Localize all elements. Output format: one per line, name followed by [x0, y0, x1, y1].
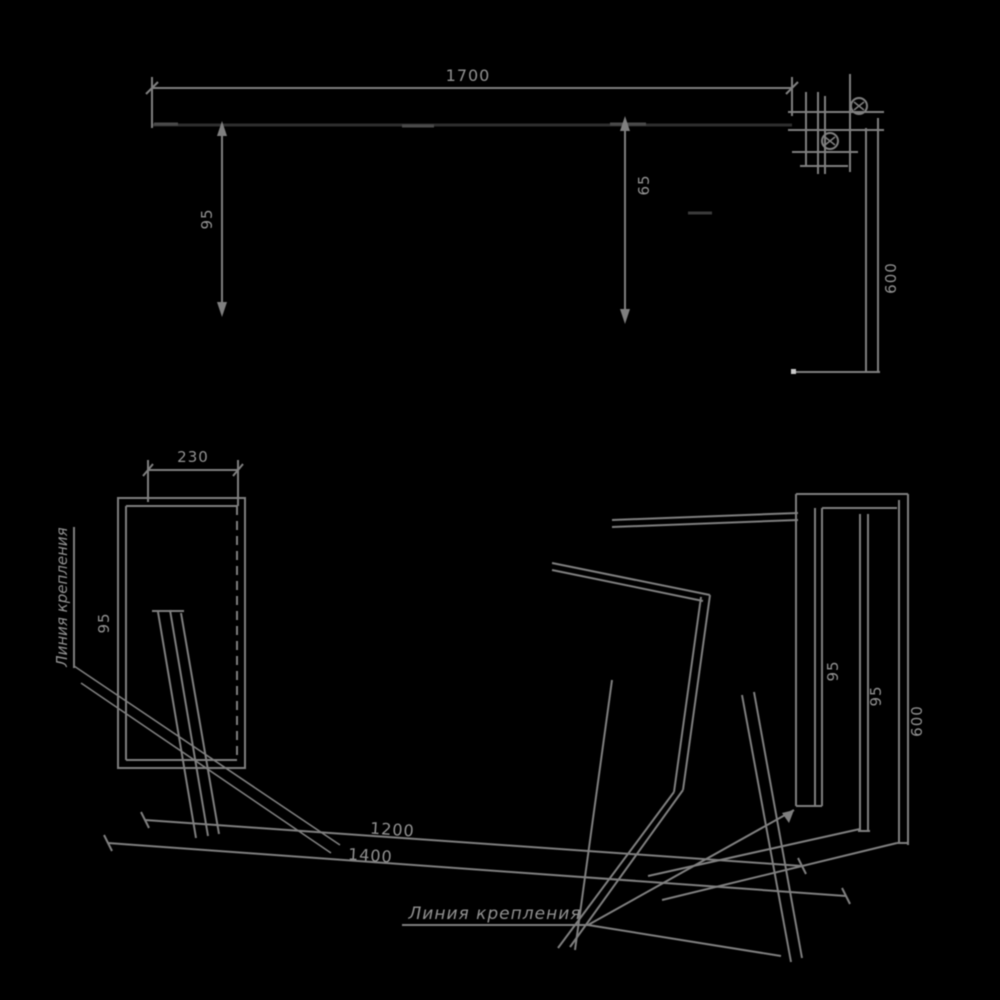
bottom-mounting-note: Линия крепления	[408, 904, 582, 924]
side-mounting-note: Линия крепления	[53, 527, 71, 667]
left-height-label: 95	[198, 208, 216, 229]
right-bracket-profile	[791, 118, 880, 374]
technical-drawing-canvas: 1700 95 65 600 230 95 Линия крепления	[0, 0, 1000, 1000]
screw-slot	[825, 137, 835, 145]
depth-dimension	[143, 460, 243, 506]
length-label: 1200	[369, 818, 415, 840]
tabletop-panels	[552, 563, 710, 950]
arrowhead	[217, 121, 227, 136]
technical-drawing-page: 1700 95 65 600 230 95 Линия крепления	[0, 0, 1000, 1000]
arrowhead	[620, 309, 630, 324]
rail-depth-label: 95	[824, 660, 842, 681]
screw-slot	[854, 102, 864, 110]
arrowhead	[217, 302, 227, 317]
corner-highlight	[791, 369, 796, 374]
perspective-view	[104, 494, 909, 962]
front-view-body-edges	[152, 125, 792, 213]
side-offset-label: 95	[95, 612, 113, 633]
length-dimensions	[104, 812, 850, 904]
side-depth-label: 230	[177, 448, 209, 466]
middle-height-dimension	[620, 116, 630, 324]
width-dimension-label: 1700	[446, 66, 491, 85]
side-view	[74, 460, 340, 853]
bracket-outline	[118, 498, 245, 768]
dim-line-1200	[145, 820, 802, 866]
front-view	[146, 74, 884, 374]
right-height-label: 600	[882, 262, 900, 294]
middle-height-label: 65	[635, 174, 653, 195]
rail-width-label: 95	[867, 685, 885, 706]
rail-height-label: 600	[908, 705, 926, 737]
overall-length-label: 1400	[347, 844, 393, 866]
wall-rail	[612, 494, 909, 900]
left-height-dimension	[217, 121, 227, 317]
note-leader-down	[588, 925, 781, 956]
dim-line-1400	[108, 843, 846, 896]
mounting-bracket-detail	[788, 74, 884, 174]
